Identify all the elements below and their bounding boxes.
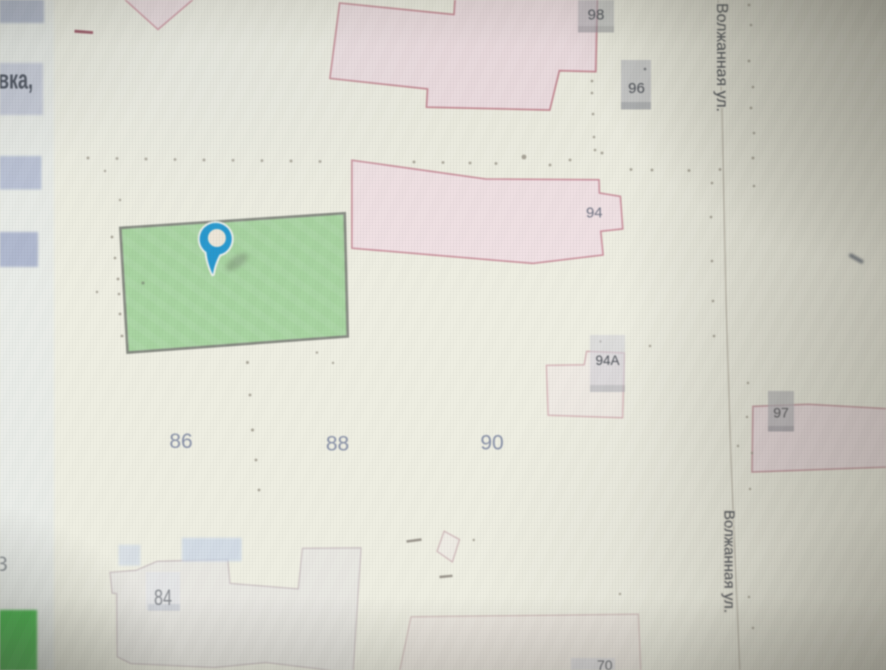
svg-text:Волжанная ул.: Волжанная ул.: [713, 3, 730, 112]
svg-text:70: 70: [597, 657, 613, 670]
svg-text:84: 84: [154, 585, 172, 610]
svg-text:94А: 94А: [595, 353, 619, 368]
svg-text:вка,: вка,: [0, 65, 33, 95]
svg-text:96: 96: [628, 80, 645, 97]
svg-text:Волжанная ул.: Волжанная ул.: [721, 510, 738, 613]
svg-text:88: 88: [326, 433, 349, 456]
svg-text:94: 94: [586, 205, 603, 222]
svg-text:90: 90: [480, 432, 503, 455]
svg-text:98: 98: [588, 7, 605, 24]
svg-text:86: 86: [169, 430, 192, 453]
svg-text:97: 97: [773, 405, 789, 421]
svg-text:3: 3: [0, 553, 8, 576]
